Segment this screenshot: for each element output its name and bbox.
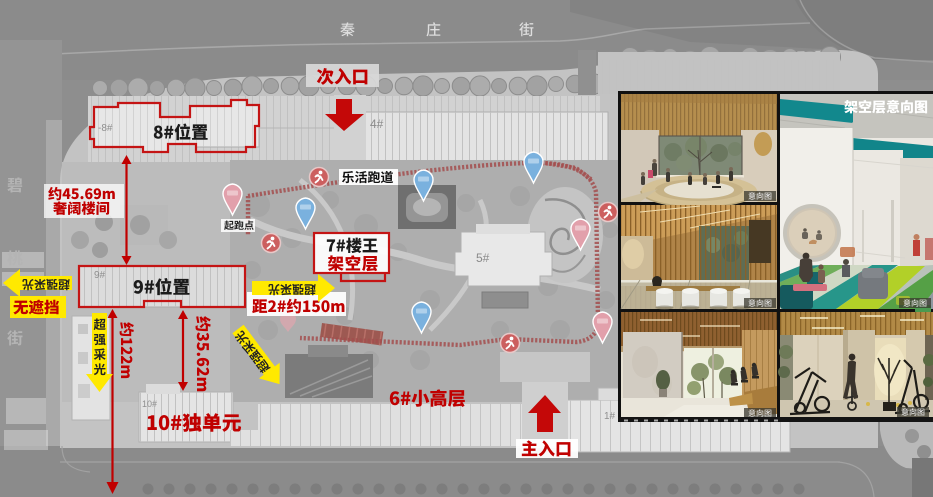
svg-text:4#: 4# <box>370 117 384 131</box>
svg-text:10#: 10# <box>142 399 157 409</box>
svg-text:-8#: -8# <box>98 123 113 134</box>
svg-text:9#: 9# <box>94 270 106 281</box>
svg-text:1#: 1# <box>604 411 616 422</box>
svg-text:5#: 5# <box>476 251 490 265</box>
